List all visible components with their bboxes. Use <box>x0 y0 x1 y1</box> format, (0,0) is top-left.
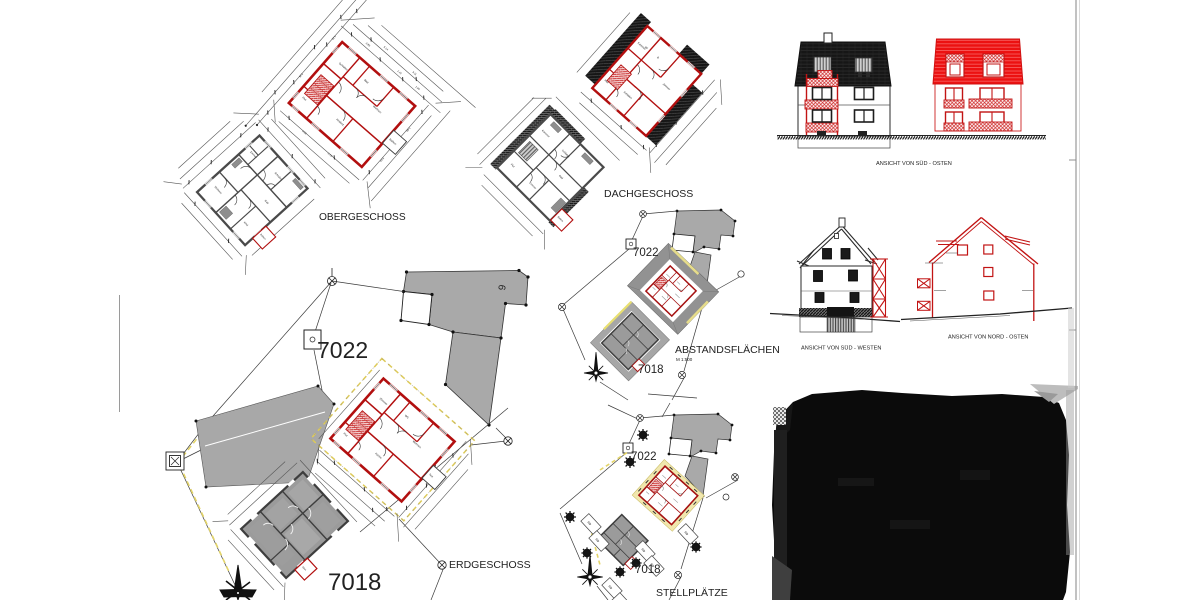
svg-text:7022: 7022 <box>631 451 657 463</box>
svg-text:ANSICHT VON NORD - OSTEN: ANSICHT VON NORD - OSTEN <box>948 335 1028 341</box>
svg-text:7018: 7018 <box>328 569 381 596</box>
svg-text:7018: 7018 <box>635 564 661 576</box>
svg-text:DACHGESCHOSS: DACHGESCHOSS <box>604 188 693 200</box>
svg-text:7018: 7018 <box>638 364 664 376</box>
svg-text:ANSICHT VON SÜD - WESTEN: ANSICHT VON SÜD - WESTEN <box>801 345 881 352</box>
svg-text:ANSICHT VON SÜD - OSTEN: ANSICHT VON SÜD - OSTEN <box>876 160 952 167</box>
svg-text:ABSTANDSFLÄCHEN: ABSTANDSFLÄCHEN <box>675 344 780 356</box>
svg-text:STELLPLÄTZE: STELLPLÄTZE <box>656 587 728 599</box>
svg-text:ERDGESCHOSS: ERDGESCHOSS <box>449 559 531 571</box>
svg-text:M 1:500: M 1:500 <box>676 357 693 362</box>
svg-text:7022: 7022 <box>317 337 368 363</box>
svg-text:7022: 7022 <box>633 247 659 259</box>
svg-text:OBERGESCHOSS: OBERGESCHOSS <box>319 212 406 223</box>
